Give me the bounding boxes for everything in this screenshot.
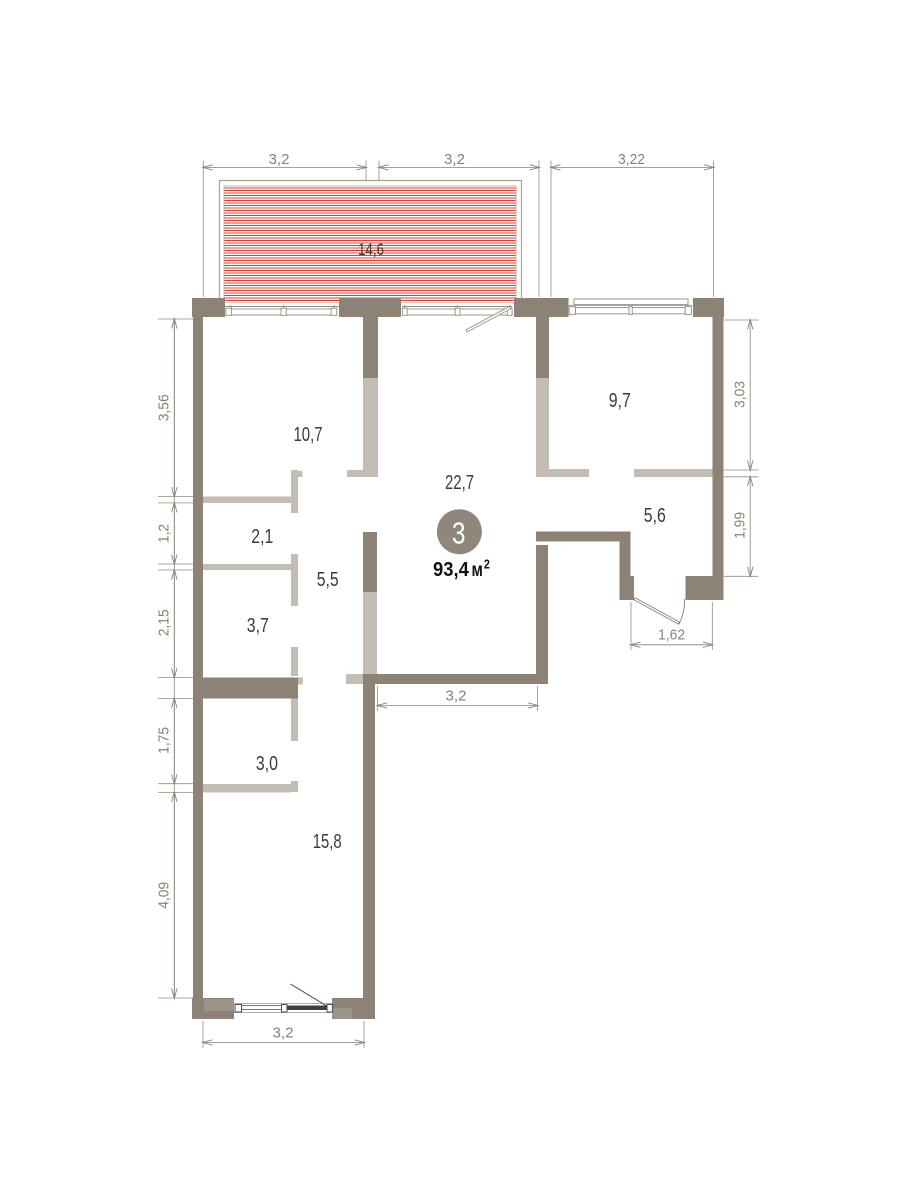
svg-text:14,6: 14,6 <box>358 241 384 259</box>
svg-text:3,2: 3,2 <box>444 151 465 168</box>
svg-text:2,1: 2,1 <box>251 526 273 548</box>
svg-text:10,7: 10,7 <box>294 424 323 446</box>
svg-text:3,7: 3,7 <box>247 615 269 637</box>
svg-text:1,62: 1,62 <box>658 627 685 644</box>
svg-text:3,22: 3,22 <box>618 151 645 168</box>
svg-text:22,7: 22,7 <box>445 472 474 494</box>
svg-text:3: 3 <box>452 516 466 551</box>
svg-text:5,5: 5,5 <box>317 569 339 591</box>
svg-text:3,2: 3,2 <box>273 1025 294 1042</box>
svg-text:3,0: 3,0 <box>256 753 278 775</box>
svg-text:93,4: 93,4 <box>433 558 469 581</box>
svg-text:3,2: 3,2 <box>269 151 290 168</box>
svg-text:9,7: 9,7 <box>609 390 631 412</box>
svg-text:5,6: 5,6 <box>644 505 666 527</box>
svg-text:1,2: 1,2 <box>156 524 173 543</box>
svg-text:3,56: 3,56 <box>156 394 173 421</box>
svg-text:м: м <box>472 560 483 581</box>
svg-text:4,09: 4,09 <box>156 882 173 909</box>
svg-text:1,99: 1,99 <box>732 512 749 539</box>
svg-text:3,03: 3,03 <box>732 381 749 408</box>
svg-text:3,2: 3,2 <box>446 688 467 705</box>
svg-text:1,75: 1,75 <box>156 727 173 754</box>
svg-text:2: 2 <box>484 557 490 571</box>
svg-text:15,8: 15,8 <box>313 831 342 853</box>
svg-text:2,15: 2,15 <box>156 609 173 636</box>
